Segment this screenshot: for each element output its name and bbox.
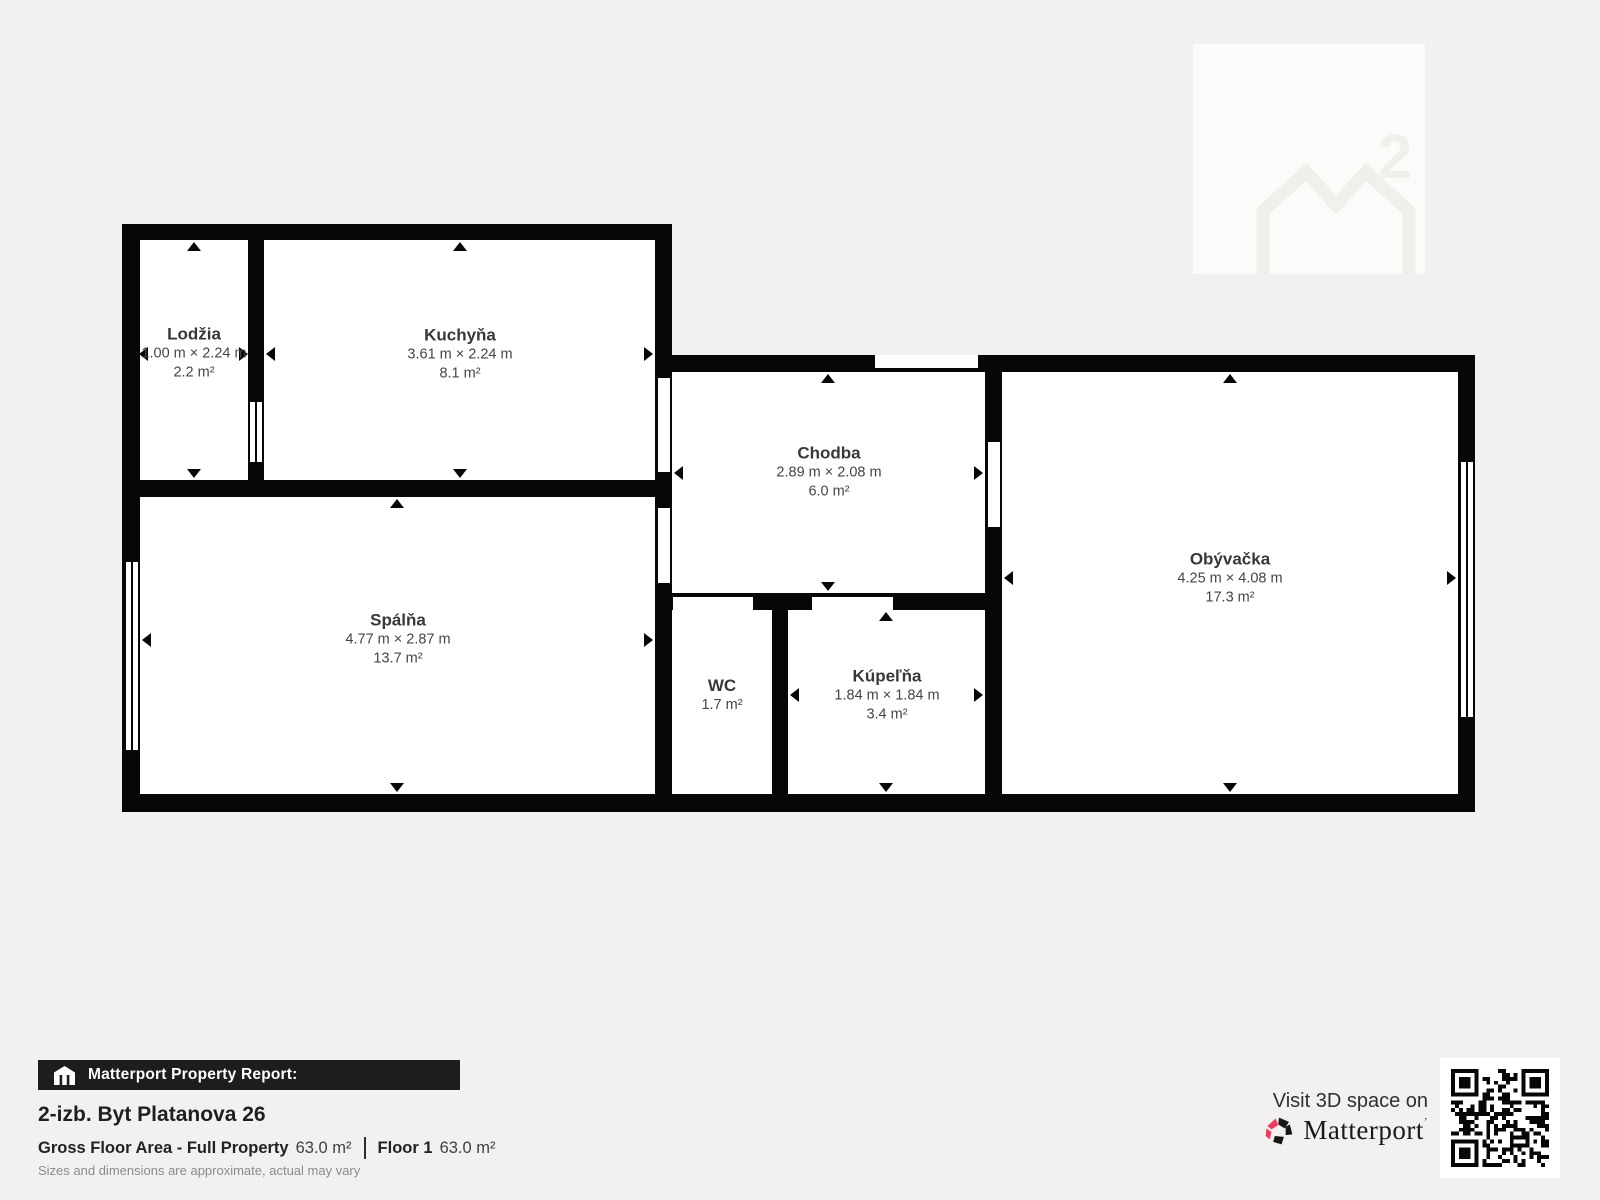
dim-arrow-up [390, 499, 404, 508]
room-area: 1.7 m² [701, 696, 742, 715]
matterport-floorplan-report: { "watermark": { "superscript": "2" }, "… [0, 0, 1600, 1200]
dim-arrow-right [974, 688, 983, 702]
qr-code [1451, 1069, 1549, 1167]
floor-value: 63.0 m² [440, 1139, 496, 1158]
property-building-icon [54, 1066, 75, 1085]
disclaimer-text: Sizes and dimensions are approximate, ac… [38, 1163, 360, 1178]
floor-label: Floor 1 [378, 1139, 433, 1158]
room-label-lodzia: Lodžia 1.00 m × 2.24 m 2.2 m² [141, 324, 246, 383]
room-name: Kuchyňa [407, 325, 512, 346]
dim-arrow-up [187, 242, 201, 251]
room-area: 6.0 m² [776, 483, 881, 502]
gfa-value: 63.0 m² [296, 1139, 352, 1158]
trademark-tick: ’ [1424, 1116, 1428, 1128]
matterport-wordmark: Matterport’ [1303, 1115, 1428, 1146]
room-dimensions: 2.89 m × 2.08 m [776, 464, 881, 483]
room-label-kuchyna: Kuchyňa 3.61 m × 2.24 m 8.1 m² [407, 325, 512, 384]
room-dimensions: 4.77 m × 2.87 m [345, 631, 450, 650]
dim-arrow-right [644, 347, 653, 361]
gfa-label: Gross Floor Area - Full Property [38, 1139, 289, 1158]
dim-arrow-down [453, 469, 467, 478]
dim-arrow-left [790, 688, 799, 702]
dim-arrow-down [187, 469, 201, 478]
visit-3d-label: Visit 3D space on [1273, 1090, 1428, 1113]
report-bar-label: Matterport Property Report: [88, 1066, 298, 1084]
room-area: 13.7 m² [345, 650, 450, 669]
dim-arrow-down [390, 783, 404, 792]
room-dimensions: 3.61 m × 2.24 m [407, 346, 512, 365]
dim-arrow-up [453, 242, 467, 251]
area-info-row: Gross Floor Area - Full Property 63.0 m²… [38, 1137, 496, 1159]
room-label-chodba: Chodba 2.89 m × 2.08 m 6.0 m² [776, 443, 881, 502]
dim-arrow-right [644, 633, 653, 647]
room-name: WC [701, 675, 742, 696]
divider [364, 1137, 366, 1159]
matterport-pinwheel-icon [1264, 1116, 1294, 1146]
dim-arrow-left [674, 466, 683, 480]
dim-arrow-left [142, 633, 151, 647]
floorplan: Lodžia 1.00 m × 2.24 m 2.2 m² Kuchyňa 3.… [0, 0, 1600, 1200]
door-opening-kupelna [812, 597, 893, 610]
dim-arrow-down [1223, 783, 1237, 792]
room-label-spalna: Spálňa 4.77 m × 2.87 m 13.7 m² [345, 610, 450, 669]
window-mullion [1466, 462, 1468, 717]
room-dimensions: 4.25 m × 4.08 m [1177, 570, 1282, 589]
report-title-bar: Matterport Property Report: [38, 1060, 460, 1090]
room-name: Lodžia [141, 324, 246, 345]
window-obyvacka [1461, 462, 1473, 717]
dim-arrow-up [879, 612, 893, 621]
room-area: 3.4 m² [834, 706, 939, 725]
room-label-obyvacka: Obývačka 4.25 m × 4.08 m 17.3 m² [1177, 549, 1282, 608]
room-area: 2.2 m² [141, 364, 246, 383]
window-lodzia-kuchyna [250, 402, 262, 462]
room-dimensions: 1.00 m × 2.24 m [141, 345, 246, 364]
dim-arrow-up [1223, 374, 1237, 383]
property-title: 2-izb. Byt Platanova 26 [38, 1103, 266, 1127]
window-spalna [126, 562, 138, 750]
dim-arrow-up [821, 374, 835, 383]
door-opening-entrance [875, 355, 978, 368]
room-area: 8.1 m² [407, 365, 512, 384]
dim-arrow-down [879, 783, 893, 792]
room-name: Obývačka [1177, 549, 1282, 570]
door-opening-kuchyna-chodba [658, 378, 670, 472]
room-name: Spálňa [345, 610, 450, 631]
matterport-logo: Matterport’ [1264, 1115, 1428, 1146]
room-label-kupelna: Kúpeľňa 1.84 m × 1.84 m 3.4 m² [834, 666, 939, 725]
dim-arrow-left [1004, 571, 1013, 585]
room-area: 17.3 m² [1177, 589, 1282, 608]
room-name: Kúpeľňa [834, 666, 939, 687]
dim-arrow-right [974, 466, 983, 480]
door-opening-wc [673, 597, 753, 610]
dim-arrow-down [821, 582, 835, 591]
door-opening-obyvacka-chodba [988, 442, 1000, 527]
qr-code-card [1440, 1058, 1560, 1178]
window-mullion [255, 402, 257, 462]
room-dimensions: 1.84 m × 1.84 m [834, 687, 939, 706]
dim-arrow-right [1447, 571, 1456, 585]
dim-arrow-left [266, 347, 275, 361]
room-label-wc: WC 1.7 m² [701, 675, 742, 715]
window-mullion [131, 562, 133, 750]
room-name: Chodba [776, 443, 881, 464]
door-opening-spalna-chodba [658, 508, 670, 583]
